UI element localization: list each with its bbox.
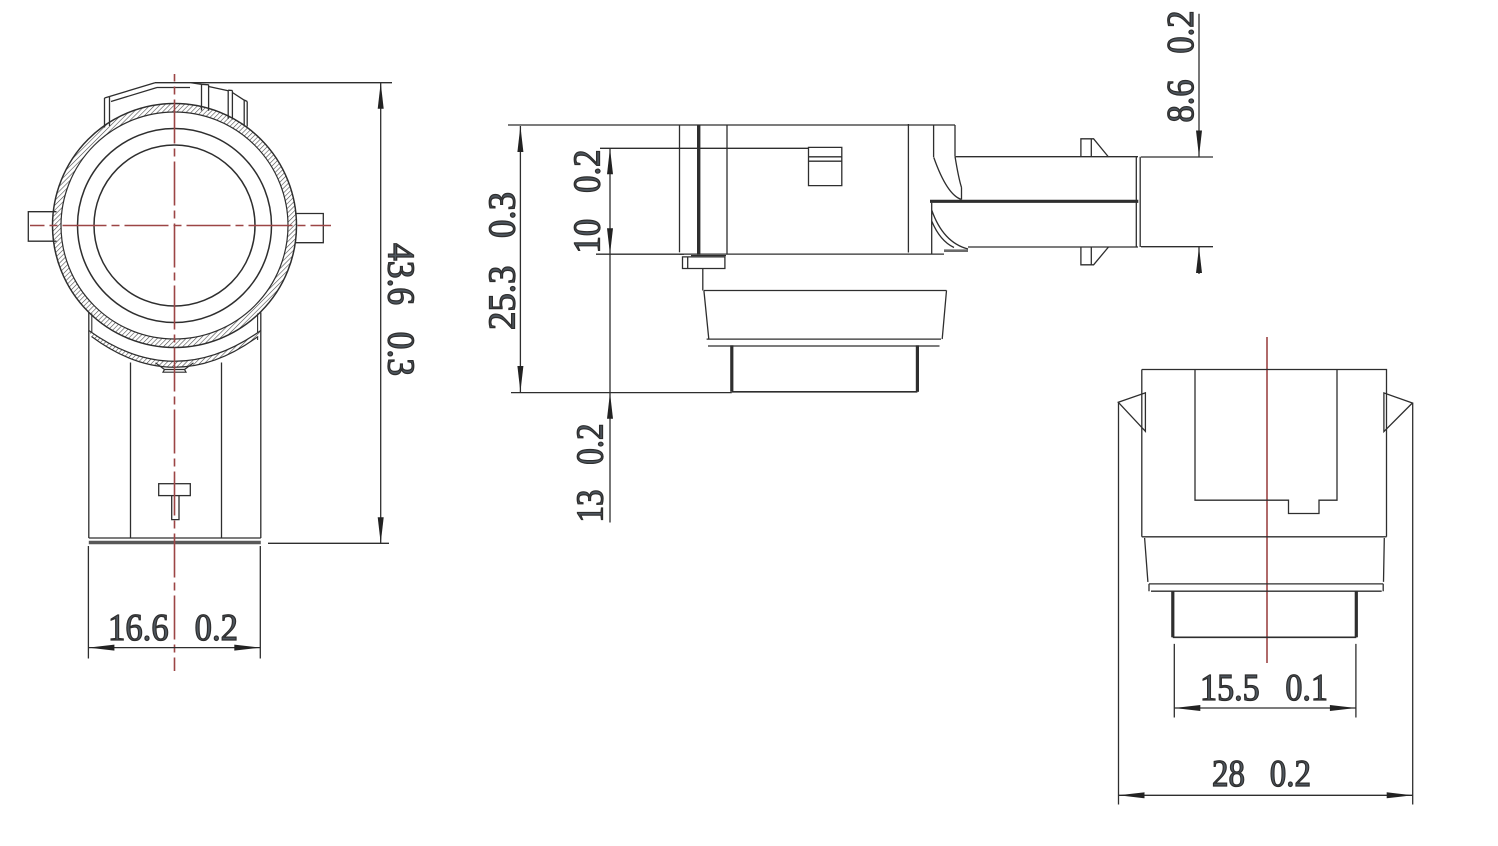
svg-text:10 0.2: 10 0.2 bbox=[567, 150, 609, 254]
svg-text:43.6 0.3: 43.6 0.3 bbox=[380, 243, 422, 376]
svg-text:13 0.2: 13 0.2 bbox=[570, 424, 612, 523]
svg-text:16.6 0.2: 16.6 0.2 bbox=[108, 607, 238, 649]
svg-text:8.6 0.2: 8.6 0.2 bbox=[1160, 11, 1202, 123]
svg-text:15.5 0.1: 15.5 0.1 bbox=[1200, 667, 1328, 709]
svg-text:28 0.2: 28 0.2 bbox=[1212, 753, 1311, 795]
svg-text:25.3 0.3: 25.3 0.3 bbox=[482, 192, 524, 330]
